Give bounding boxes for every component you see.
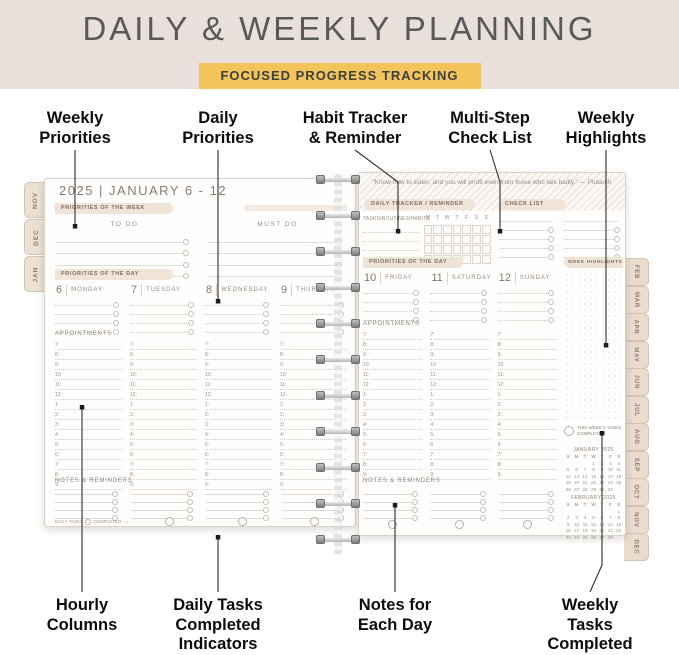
day-number: 6 bbox=[55, 284, 67, 296]
hour-column: 7:8:9:10:11:12:1:2:3:4:5:6:7:8:9: bbox=[363, 330, 422, 480]
page-title: DAILY & WEEKLY PLANNING bbox=[0, 10, 679, 48]
hour-line: 9: bbox=[498, 350, 557, 360]
weekly-tasks-checkbox: THIS WEEK'S TASKS COMPLETED bbox=[564, 425, 623, 437]
hour-line: 3: bbox=[205, 420, 272, 430]
day-column: 10FRIDAY bbox=[363, 271, 422, 321]
hour-line: 11: bbox=[430, 370, 489, 380]
notes-label-left: NOTES & REMINDERS bbox=[55, 478, 133, 484]
check-list-line bbox=[499, 240, 553, 249]
note-line bbox=[363, 495, 417, 503]
notes-section-left bbox=[55, 487, 347, 519]
hour-line: 6: bbox=[430, 440, 489, 450]
hour-line: 10: bbox=[205, 370, 272, 380]
tracker-day-letter: W bbox=[442, 215, 452, 221]
mini-calendar-january: JANUARY 2025SMTWTFS123456789101112131415… bbox=[564, 447, 623, 493]
hour-line: 11: bbox=[363, 370, 422, 380]
day-name: WEDNESDAY bbox=[221, 287, 268, 293]
hour-line: 6: bbox=[205, 450, 272, 460]
hour-line: 2: bbox=[205, 410, 272, 420]
tasks-routines-habits-label: TASKS/ROUTINES/HABITS bbox=[363, 216, 430, 222]
check-list-banner: CHECK LIST bbox=[499, 199, 565, 210]
tracker-checkbox bbox=[453, 245, 462, 254]
hour-line: 12: bbox=[363, 380, 422, 390]
calendar-grid: SMTWTFS123456789101112131415161718192021… bbox=[564, 454, 623, 493]
hour-column: 7:8:9:10:11:12:1:2:3:4:5:6:7:8:9: bbox=[55, 340, 122, 490]
check-list-column-2 bbox=[563, 213, 621, 258]
note-line bbox=[363, 511, 417, 519]
note-line bbox=[206, 503, 268, 511]
note-line bbox=[499, 487, 553, 495]
calendar-date: 27 bbox=[572, 487, 580, 494]
day-completed-circle bbox=[238, 517, 247, 526]
priority-line bbox=[205, 324, 268, 333]
checkbox-circle-icon bbox=[564, 426, 574, 436]
tracker-day-letter: F bbox=[462, 215, 472, 221]
day-number: 9 bbox=[280, 284, 292, 296]
tracker-day-letter: M bbox=[423, 215, 433, 221]
hour-line: 9: bbox=[205, 360, 272, 370]
hour-line: 8: bbox=[430, 460, 489, 470]
priority-line bbox=[498, 285, 553, 294]
priority-line bbox=[363, 294, 418, 303]
spiral-loop bbox=[316, 174, 360, 185]
tracker-checkbox bbox=[472, 225, 481, 234]
note-line bbox=[431, 495, 485, 503]
check-list-line bbox=[499, 222, 553, 231]
priority-line bbox=[430, 303, 485, 312]
note-line bbox=[131, 503, 193, 511]
hour-line: 7: bbox=[55, 460, 122, 470]
spiral-loop bbox=[316, 498, 360, 509]
hour-line: 5: bbox=[205, 440, 272, 450]
priority-line bbox=[205, 315, 268, 324]
hour-line: 7: bbox=[205, 460, 272, 470]
notes-label-right: NOTES & REMINDERS bbox=[363, 478, 441, 484]
hour-line: 11: bbox=[130, 380, 197, 390]
daily-priorities-section-left: 6MONDAY7TUESDAY8WEDNESDAY9THURSDAY bbox=[55, 283, 347, 333]
hour-line: 8: bbox=[130, 350, 197, 360]
hour-line: 1: bbox=[430, 390, 489, 400]
planner-product-diagram: DAILY & WEEKLY PLANNING FOCUSED PROGRESS… bbox=[0, 0, 679, 655]
day-column: 11SATURDAY bbox=[430, 271, 489, 321]
left-page: 2025 | JANUARY 6 - 12 PRIORITIES OF THE … bbox=[44, 178, 356, 527]
priority-line bbox=[363, 303, 418, 312]
day-header: 8WEDNESDAY bbox=[205, 283, 272, 297]
priorities-day-banner-right: PRIORITIES OF THE DAY bbox=[363, 257, 463, 268]
tracker-checkbox bbox=[482, 245, 491, 254]
priority-line bbox=[498, 303, 553, 312]
hour-line: 8: bbox=[55, 350, 122, 360]
tab-label: MAR bbox=[633, 291, 639, 307]
spiral-loop bbox=[316, 318, 360, 329]
spiral-loop bbox=[316, 282, 360, 293]
note-line bbox=[363, 503, 417, 511]
hour-line: 9: bbox=[130, 360, 197, 370]
week-highlights-dot-grid bbox=[564, 271, 623, 423]
day-column: 8WEDNESDAY bbox=[205, 283, 272, 333]
day-name: SATURDAY bbox=[452, 275, 492, 281]
priority-line bbox=[55, 315, 118, 324]
note-line bbox=[55, 487, 117, 495]
tracker-checkbox bbox=[462, 235, 471, 244]
month-tab-nov: NOV bbox=[624, 506, 649, 534]
hour-line: 3: bbox=[430, 410, 489, 420]
hour-line: 7: bbox=[363, 450, 422, 460]
hour-line: 9: bbox=[430, 350, 489, 360]
annotation-notes-each-day: Notes for Each Day bbox=[358, 596, 432, 635]
calendar-date: 24 bbox=[572, 535, 580, 542]
tab-label: AUG bbox=[633, 429, 639, 445]
hour-line: 8: bbox=[430, 340, 489, 350]
hour-line: 12: bbox=[205, 390, 272, 400]
hour-line: 8: bbox=[205, 470, 272, 480]
daily-priorities-section-right: 10FRIDAY11SATURDAY12SUNDAY bbox=[363, 271, 557, 321]
spiral-loop bbox=[316, 426, 360, 437]
weekly-checkbox-label: THIS WEEK'S TASKS COMPLETED bbox=[577, 425, 621, 437]
day-header: 6MONDAY bbox=[55, 283, 122, 297]
priority-line bbox=[430, 294, 485, 303]
hourly-columns-right: 7:8:9:10:11:12:1:2:3:4:5:6:7:8:9:7:8:9:1… bbox=[363, 330, 557, 480]
priorities-day-banner-left: PRIORITIES OF THE DAY bbox=[55, 269, 173, 280]
tracker-checkbox bbox=[424, 245, 433, 254]
hour-line: 9: bbox=[55, 360, 122, 370]
check-list-line bbox=[499, 231, 553, 240]
hour-line: 2: bbox=[55, 410, 122, 420]
spiral-loop bbox=[316, 246, 360, 257]
hour-line: 3: bbox=[55, 420, 122, 430]
annotation-habit-tracker: Habit Tracker & Reminder bbox=[303, 109, 408, 148]
priority-line bbox=[430, 285, 485, 294]
check-list-line bbox=[563, 213, 619, 222]
hour-line: 4: bbox=[55, 430, 122, 440]
tab-label: OCT bbox=[633, 484, 639, 499]
note-line bbox=[499, 495, 553, 503]
note-line bbox=[431, 503, 485, 511]
hour-line: 8: bbox=[498, 460, 557, 470]
tab-label: DEC bbox=[633, 539, 639, 554]
tracker-checkbox bbox=[462, 245, 471, 254]
day-header: 10FRIDAY bbox=[363, 271, 422, 285]
tracker-checkbox bbox=[443, 245, 452, 254]
hour-line: 4: bbox=[363, 420, 422, 430]
hour-line: 7: bbox=[363, 330, 422, 340]
tracker-checkbox bbox=[472, 255, 481, 264]
hour-line: 1: bbox=[363, 390, 422, 400]
month-tab-may: MAY bbox=[624, 341, 649, 369]
completed-text: COMPLETED bbox=[93, 519, 121, 524]
day-header: 12SUNDAY bbox=[498, 271, 557, 285]
annotation-weekly-priorities: Weekly Priorities bbox=[39, 109, 111, 148]
priority-line bbox=[130, 315, 193, 324]
hour-line: 1: bbox=[498, 390, 557, 400]
annotation-dot bbox=[216, 535, 221, 540]
hour-line: 5: bbox=[498, 430, 557, 440]
hour-line: 3: bbox=[498, 410, 557, 420]
week-title: 2025 | JANUARY 6 - 12 bbox=[59, 183, 227, 198]
hour-line: 10: bbox=[498, 360, 557, 370]
tab-label: NOV bbox=[33, 191, 40, 208]
hour-line: 9: bbox=[498, 470, 557, 480]
calendar-title: FEBRUARY 2025 bbox=[564, 495, 623, 501]
tracker-row-line bbox=[363, 224, 419, 233]
tracker-day-letter: S bbox=[481, 215, 491, 221]
hour-line: 5: bbox=[363, 430, 422, 440]
hour-line: 10: bbox=[130, 370, 197, 380]
circle-indicator-icon bbox=[85, 519, 91, 525]
priority-line bbox=[498, 312, 553, 321]
day-completed-circle bbox=[165, 517, 174, 526]
hour-line: 7: bbox=[55, 340, 122, 350]
calendar-date: 28 bbox=[606, 535, 614, 542]
month-tab-apr: APR bbox=[624, 313, 649, 341]
calendar-date: 23 bbox=[564, 535, 572, 542]
priority-line bbox=[55, 297, 118, 306]
calendar-date: 25 bbox=[581, 535, 589, 542]
hour-column: 7:8:9:10:11:12:1:2:3:4:5:6:7:8:9: bbox=[130, 340, 197, 490]
arrow-icon: → bbox=[123, 519, 129, 525]
note-line bbox=[431, 487, 485, 495]
priority-line bbox=[430, 312, 485, 321]
tracker-checkbox bbox=[433, 225, 442, 234]
hour-line: 7: bbox=[498, 330, 557, 340]
tracker-checkbox bbox=[462, 255, 471, 264]
tracker-day-letter: T bbox=[452, 215, 462, 221]
check-list-line bbox=[563, 222, 619, 231]
priority-line bbox=[130, 306, 193, 315]
day-completed-circle bbox=[523, 520, 532, 529]
priorities-week-banner: PRIORITIES OF THE WEEK bbox=[55, 203, 173, 214]
month-tab-jul: JUL bbox=[624, 396, 649, 424]
tracker-checkbox bbox=[433, 235, 442, 244]
tracker-day-letter: T bbox=[433, 215, 443, 221]
calendar-date bbox=[615, 487, 623, 494]
hour-line: 4: bbox=[498, 420, 557, 430]
priority-line bbox=[205, 297, 268, 306]
spiral-loop bbox=[316, 534, 360, 545]
spiral-loop bbox=[316, 354, 360, 365]
month-tab-sep: SEP bbox=[624, 451, 649, 479]
day-column: 7TUESDAY bbox=[130, 283, 197, 333]
priority-line bbox=[130, 297, 193, 306]
day-name: TUESDAY bbox=[146, 287, 181, 293]
todo-header: TO DO bbox=[55, 219, 194, 231]
month-tab-jun: JUN bbox=[624, 368, 649, 396]
calendar-grid: SMTWTFS123456789101112131415161718192021… bbox=[564, 502, 623, 541]
tab-label: APR bbox=[633, 319, 639, 334]
daily-tasks-completed-row-right bbox=[363, 520, 557, 529]
hour-line: 3: bbox=[363, 410, 422, 420]
calendar-date: 29 bbox=[589, 487, 597, 494]
hour-line: 10: bbox=[430, 360, 489, 370]
tracker-checkbox bbox=[443, 225, 452, 234]
hour-line: 6: bbox=[363, 440, 422, 450]
day-number: 10 bbox=[363, 272, 381, 284]
calendar-date: 31 bbox=[606, 487, 614, 494]
hour-line: 10: bbox=[55, 370, 122, 380]
appointments-label-left: APPOINTMENTS bbox=[55, 331, 112, 337]
hour-column: 7:8:9:10:11:12:1:2:3:4:5:6:7:8:9: bbox=[430, 330, 489, 480]
tab-label: NOV bbox=[633, 512, 639, 527]
check-list-line bbox=[499, 249, 553, 258]
tracker-checkbox bbox=[424, 235, 433, 244]
hour-line: 8: bbox=[498, 340, 557, 350]
day-number: 11 bbox=[430, 272, 447, 284]
tracker-checkbox bbox=[482, 255, 491, 264]
tab-label: JUL bbox=[633, 403, 639, 417]
hour-line: 1: bbox=[55, 400, 122, 410]
hour-line: 7: bbox=[430, 450, 489, 460]
hour-line: 5: bbox=[55, 440, 122, 450]
spiral-loop bbox=[316, 462, 360, 473]
hour-line: 6: bbox=[130, 450, 197, 460]
mini-calendar-february: FEBRUARY 2025SMTWTFS12345678910111213141… bbox=[564, 495, 623, 541]
month-tab-oct: OCT bbox=[624, 478, 649, 506]
month-tab-mar: MAR bbox=[624, 286, 649, 314]
spiral-binding bbox=[316, 174, 360, 556]
week-highlights-banner: WEEK HIGHLIGHTS bbox=[564, 257, 623, 268]
annotation-weekly-highlights: Weekly Highlights bbox=[566, 109, 647, 148]
day-number: 8 bbox=[205, 284, 217, 296]
tracker-checkbox bbox=[453, 225, 462, 234]
hour-line: 7: bbox=[130, 340, 197, 350]
hour-line: 7: bbox=[205, 340, 272, 350]
priority-line bbox=[363, 285, 418, 294]
note-line bbox=[55, 495, 117, 503]
daily-tasks-text: DAILY TASKS bbox=[55, 519, 83, 524]
hour-line: 2: bbox=[130, 410, 197, 420]
hour-column: 7:8:9:10:11:12:1:2:3:4:5:6:7:8:9: bbox=[498, 330, 557, 480]
todo-line bbox=[55, 254, 188, 266]
tracker-checkbox bbox=[462, 225, 471, 234]
day-name: MONDAY bbox=[71, 287, 103, 293]
calendar-date bbox=[615, 535, 623, 542]
hour-line: 2: bbox=[430, 400, 489, 410]
calendar-date: 28 bbox=[581, 487, 589, 494]
tab-label: JAN bbox=[32, 266, 39, 282]
tracker-checkbox bbox=[482, 225, 491, 234]
priority-line bbox=[498, 294, 553, 303]
hour-line: 7: bbox=[498, 450, 557, 460]
check-list-line bbox=[563, 231, 619, 240]
day-header: 11SATURDAY bbox=[430, 271, 489, 285]
note-line bbox=[499, 503, 553, 511]
note-line bbox=[431, 511, 485, 519]
month-tab-dec: DEC bbox=[624, 533, 649, 561]
day-number: 7 bbox=[130, 284, 142, 296]
hour-line: 4: bbox=[430, 420, 489, 430]
todo-line bbox=[55, 243, 188, 255]
day-column: 6MONDAY bbox=[55, 283, 122, 333]
right-page: “Know how to listen, and you will profit… bbox=[358, 172, 626, 536]
tracker-lines bbox=[363, 224, 419, 260]
calendar-date: 26 bbox=[564, 487, 572, 494]
hour-line: 12: bbox=[130, 390, 197, 400]
hour-line: 2: bbox=[498, 400, 557, 410]
calendar-date: 27 bbox=[598, 535, 606, 542]
hour-line: 12: bbox=[498, 380, 557, 390]
priority-line bbox=[205, 306, 268, 315]
annotation-daily-priorities: Daily Priorities bbox=[182, 109, 254, 148]
tracker-checkbox bbox=[472, 245, 481, 254]
day-name: SUNDAY bbox=[520, 275, 551, 281]
hour-line: 11: bbox=[55, 380, 122, 390]
tracker-checkbox bbox=[472, 235, 481, 244]
calendar-title: JANUARY 2025 bbox=[564, 447, 623, 453]
hour-line: 1: bbox=[130, 400, 197, 410]
day-header: 7TUESDAY bbox=[130, 283, 197, 297]
hour-line: 7: bbox=[430, 330, 489, 340]
priority-line bbox=[363, 312, 418, 321]
notes-section-right bbox=[363, 487, 557, 519]
hour-line: 1: bbox=[205, 400, 272, 410]
appointments-label-right: APPOINTMENTS bbox=[363, 321, 420, 327]
tracker-row-line bbox=[363, 233, 419, 242]
hour-line: 6: bbox=[498, 440, 557, 450]
hour-line: 6: bbox=[55, 450, 122, 460]
hour-line: 12: bbox=[430, 380, 489, 390]
hour-line: 7: bbox=[130, 460, 197, 470]
hour-line: 10: bbox=[363, 360, 422, 370]
hour-line: 2: bbox=[363, 400, 422, 410]
note-line bbox=[131, 487, 193, 495]
tracker-day-letters: MTWTFSS bbox=[423, 215, 491, 221]
hour-line: 3: bbox=[130, 420, 197, 430]
hour-line: 8: bbox=[363, 340, 422, 350]
hour-line: 8: bbox=[205, 350, 272, 360]
hour-line: 12: bbox=[55, 390, 122, 400]
check-list-line bbox=[563, 240, 619, 249]
check-list-line bbox=[499, 213, 553, 222]
calendar-date: 30 bbox=[598, 487, 606, 494]
tracker-checkbox bbox=[443, 235, 452, 244]
subtitle-badge: FOCUSED PROGRESS TRACKING bbox=[198, 63, 480, 89]
spiral-loop bbox=[316, 390, 360, 401]
tab-label: DEC bbox=[32, 229, 39, 246]
tab-label: SEP bbox=[633, 457, 639, 471]
todo-line bbox=[55, 231, 188, 243]
month-tab-aug: AUG bbox=[624, 423, 649, 451]
tracker-row-line bbox=[363, 242, 419, 251]
annotation-weekly-tasks-checkbox: Weekly Tasks Completed Check Box bbox=[546, 596, 635, 655]
hour-line: 5: bbox=[130, 440, 197, 450]
day-column: 12SUNDAY bbox=[498, 271, 557, 321]
hour-line: 11: bbox=[205, 380, 272, 390]
day-number: 12 bbox=[498, 272, 516, 284]
hour-line: 4: bbox=[130, 430, 197, 440]
annotation-hourly-columns: Hourly Columns bbox=[47, 596, 118, 635]
note-line bbox=[131, 495, 193, 503]
tab-label: MAY bbox=[633, 347, 639, 362]
tracker-checkbox bbox=[433, 245, 442, 254]
quote-text: “Know how to listen, and you will profit… bbox=[366, 179, 618, 186]
daily-tasks-completed-row-left: DAILY TASKS COMPLETED → bbox=[55, 517, 347, 526]
tab-label: FEB bbox=[633, 265, 639, 279]
tracker-checkbox bbox=[424, 225, 433, 234]
day-completed-circle bbox=[388, 520, 397, 529]
check-list-column-1 bbox=[499, 213, 555, 258]
note-line bbox=[363, 487, 417, 495]
tracker-checkbox bbox=[482, 235, 491, 244]
note-line bbox=[55, 503, 117, 511]
hourly-columns-left: 7:8:9:10:11:12:1:2:3:4:5:6:7:8:9:7:8:9:1… bbox=[55, 340, 347, 490]
note-line bbox=[206, 487, 268, 495]
day-name: FRIDAY bbox=[385, 275, 413, 281]
hour-line: 8: bbox=[363, 460, 422, 470]
annotation-daily-tasks-completed: Daily Tasks Completed Indicators bbox=[173, 596, 263, 655]
priority-line bbox=[55, 306, 118, 315]
hour-line: 11: bbox=[498, 370, 557, 380]
spiral-loop bbox=[316, 210, 360, 221]
